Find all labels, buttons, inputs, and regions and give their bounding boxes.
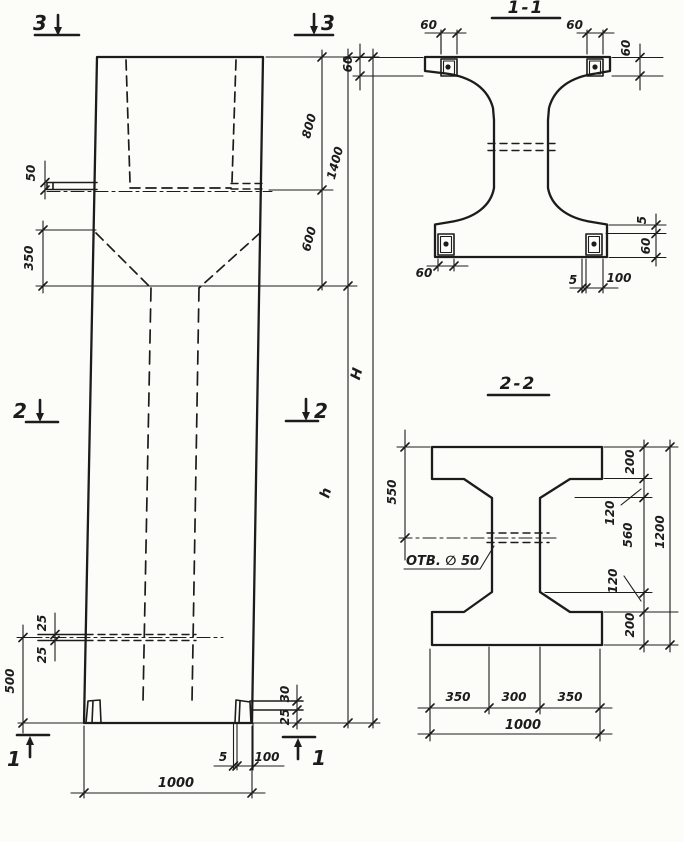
dim-600-label: 600 — [299, 225, 319, 253]
embedded-plate-bottom-right — [586, 234, 602, 255]
dim-60-top-right-height: 60 — [619, 40, 633, 57]
section-1-1-extension-lines — [353, 30, 666, 293]
elevation-view: 50 350 800 600 1400 h H 25 25 500 30 25 … — [3, 11, 441, 798]
section-mark-3-right-arrow — [310, 26, 318, 35]
embedded-plate-bottom-left — [438, 234, 454, 255]
section-mark-1-right-arrow — [294, 738, 302, 747]
extension-lines — [17, 30, 441, 798]
section-mark-3-right: 3 — [295, 11, 335, 35]
column-hidden-taper-diagonals — [96, 233, 260, 288]
section-2-2-dimension-ticks — [401, 443, 674, 738]
dim-60-right: 60 — [639, 238, 653, 255]
section-mark-1-right: 1 — [283, 737, 326, 770]
embedded-plate-top-left — [441, 59, 457, 76]
ledge-hidden-right — [231, 184, 262, 190]
section-mark-2-right: 2 — [286, 399, 328, 423]
dim-5-base-label: 5 — [219, 750, 227, 764]
dim-H-label: H — [348, 366, 367, 382]
section-mark-2-left-arrow — [36, 413, 44, 422]
section-mark-2-left-line — [26, 400, 58, 422]
drawing-sheet: 50 350 800 600 1400 h H 25 25 500 30 25 … — [0, 0, 684, 842]
dim-120-top-label: 120 — [603, 500, 617, 525]
dim-500-label: 500 — [3, 668, 17, 693]
dim-25-top-label: 25 — [35, 615, 49, 632]
section-1-1-view: 1-1 60 — [341, 0, 666, 293]
dim-25-bottom-label: 25 — [35, 647, 49, 664]
dim-120-bottom-label: 120 — [606, 568, 620, 593]
dim-60-top-left-width: 60 — [420, 18, 437, 32]
dim-550-label: 550 — [385, 479, 399, 504]
dim-30-label: 30 — [278, 686, 292, 703]
section-mark-2-left: 2 — [13, 399, 58, 423]
section-2-2-dimension-lines — [405, 430, 670, 734]
section-mark-2-right-arrow — [302, 412, 310, 421]
dim-100-base-label: 100 — [254, 750, 279, 764]
dim-60-top-left-height: 60 — [341, 56, 355, 73]
column-hidden-lines-top — [126, 60, 236, 188]
section-mark-1-left: 1 — [7, 735, 49, 771]
base-foot-right — [235, 700, 303, 723]
section-1-1-dimension-lines — [360, 33, 656, 288]
dim-300-label: 300 — [501, 690, 526, 704]
dim-1000-base-label: 1000 — [158, 776, 194, 791]
hole-label: ОТВ. ∅ 50 — [406, 554, 479, 569]
section-mark-1-left-line — [17, 735, 49, 757]
section-1-1-dimension-ticks — [356, 29, 660, 292]
dim-5-bottom: 5 — [569, 273, 577, 287]
dim-200-bottom-label: 200 — [623, 612, 637, 637]
section-mark-3-right-digit: 3 — [321, 11, 335, 35]
section-1-1-outline — [425, 57, 610, 257]
section-1-1-title: 1-1 — [508, 0, 545, 18]
section-mark-2-right-digit: 2 — [314, 399, 328, 423]
dim-350-left-label: 350 — [445, 690, 470, 704]
dim-60-top-right-width: 60 — [566, 18, 583, 32]
base-foot-left — [86, 700, 101, 723]
column-technical-drawing: 50 350 800 600 1400 h H 25 25 500 30 25 … — [0, 0, 684, 842]
dim-h-label: h — [317, 486, 335, 500]
dim-350-label: 350 — [22, 245, 36, 270]
dim-100-bottom: 100 — [606, 271, 631, 285]
section-mark-1-left-digit: 1 — [7, 747, 21, 771]
dim-560-label: 560 — [621, 522, 635, 547]
ledge-plate — [47, 183, 97, 190]
section-1-1-hole-hidden — [488, 144, 560, 151]
dim-200-top-label: 200 — [623, 449, 637, 474]
dim-25-foot-label: 25 — [278, 709, 292, 726]
dim-1200-label: 1200 — [653, 515, 667, 548]
column-outline — [84, 57, 263, 723]
section-2-2-outline — [432, 447, 602, 645]
section-mark-2-left-digit: 2 — [13, 399, 27, 423]
dim-1000-label: 1000 — [505, 718, 541, 733]
section-mark-3-left: 3 — [33, 11, 79, 36]
dim-1400-label: 1400 — [324, 145, 346, 181]
dim-60-bottom-left-width: 60 — [416, 266, 433, 280]
dimension-ticks — [19, 53, 377, 797]
section-mark-1-left-arrow — [26, 736, 34, 745]
section-2-2-title: 2-2 — [500, 374, 537, 394]
dim-800-label: 800 — [299, 112, 319, 140]
section-mark-3-left-digit: 3 — [33, 11, 47, 35]
embedded-plate-top-right — [587, 59, 603, 76]
section-mark-1-right-digit: 1 — [312, 746, 326, 770]
dim-350-right-label: 350 — [557, 690, 582, 704]
dim-5-right: 5 — [635, 216, 649, 224]
dim-50-label: 50 — [24, 165, 38, 182]
section-2-2-view: 2-2 ОТВ. ∅ 50 550 200 120 560 120 200 12… — [385, 374, 678, 741]
